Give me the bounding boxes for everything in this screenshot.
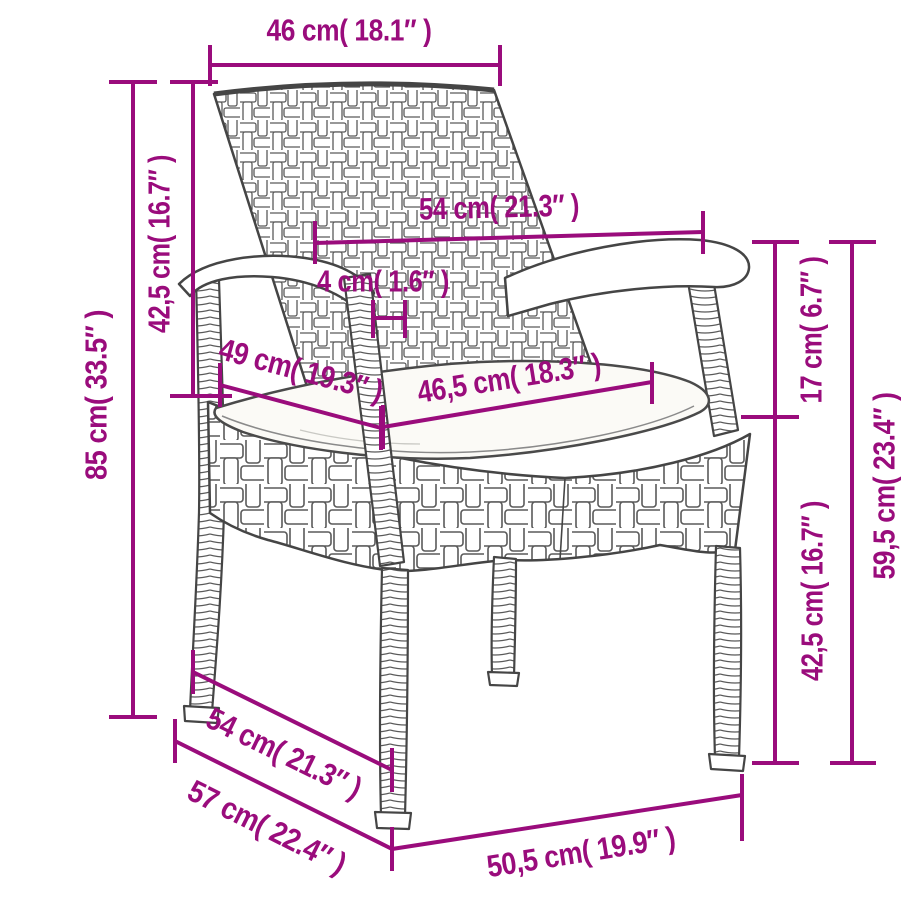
dimension-diagram: 46 cm( 18.1″ )85 cm( 33.5″ )42,5 cm( 16.… bbox=[0, 0, 920, 920]
chair-foot-front bbox=[375, 812, 411, 829]
chair-leg-rear-right bbox=[492, 557, 516, 676]
chair-foot-rear-right bbox=[488, 672, 519, 686]
dimension-label: 17 cm( 6.7″ ) bbox=[794, 257, 829, 404]
chair-leg-right bbox=[714, 546, 741, 758]
dim-backrest-width: 46 cm( 18.1″ ) bbox=[210, 13, 500, 87]
dim-base-width: 50,5 cm( 19.9″ ) bbox=[392, 774, 742, 884]
diagram-canvas: 46 cm( 18.1″ )85 cm( 33.5″ )42,5 cm( 16.… bbox=[0, 0, 920, 920]
dimension-label: 42,5 cm( 16.7″ ) bbox=[795, 501, 830, 681]
dim-armrest-to-seat-gap: 17 cm( 6.7″ ) bbox=[741, 242, 829, 417]
chair-foot-right bbox=[709, 754, 745, 771]
dimension-label: 59,5 cm( 23.4″ ) bbox=[867, 393, 902, 580]
dim-armrest-height: 59,5 cm( 23.4″ ) bbox=[829, 242, 902, 763]
dimension-label: 85 cm( 33.5″ ) bbox=[79, 310, 114, 480]
dimension-label: 54 cm( 21.3″ ) bbox=[419, 187, 580, 226]
dim-seat-height: 42,5 cm( 16.7″ ) bbox=[752, 417, 830, 763]
dim-base-depth-inner: 54 cm( 21.3″ ) bbox=[193, 650, 392, 806]
dimension-label: 4 cm( 1.6″ ) bbox=[317, 264, 449, 299]
dimension-label: 46 cm( 18.1″ ) bbox=[267, 13, 432, 48]
dimension-label: 42,5 cm( 16.7″ ) bbox=[142, 155, 177, 333]
